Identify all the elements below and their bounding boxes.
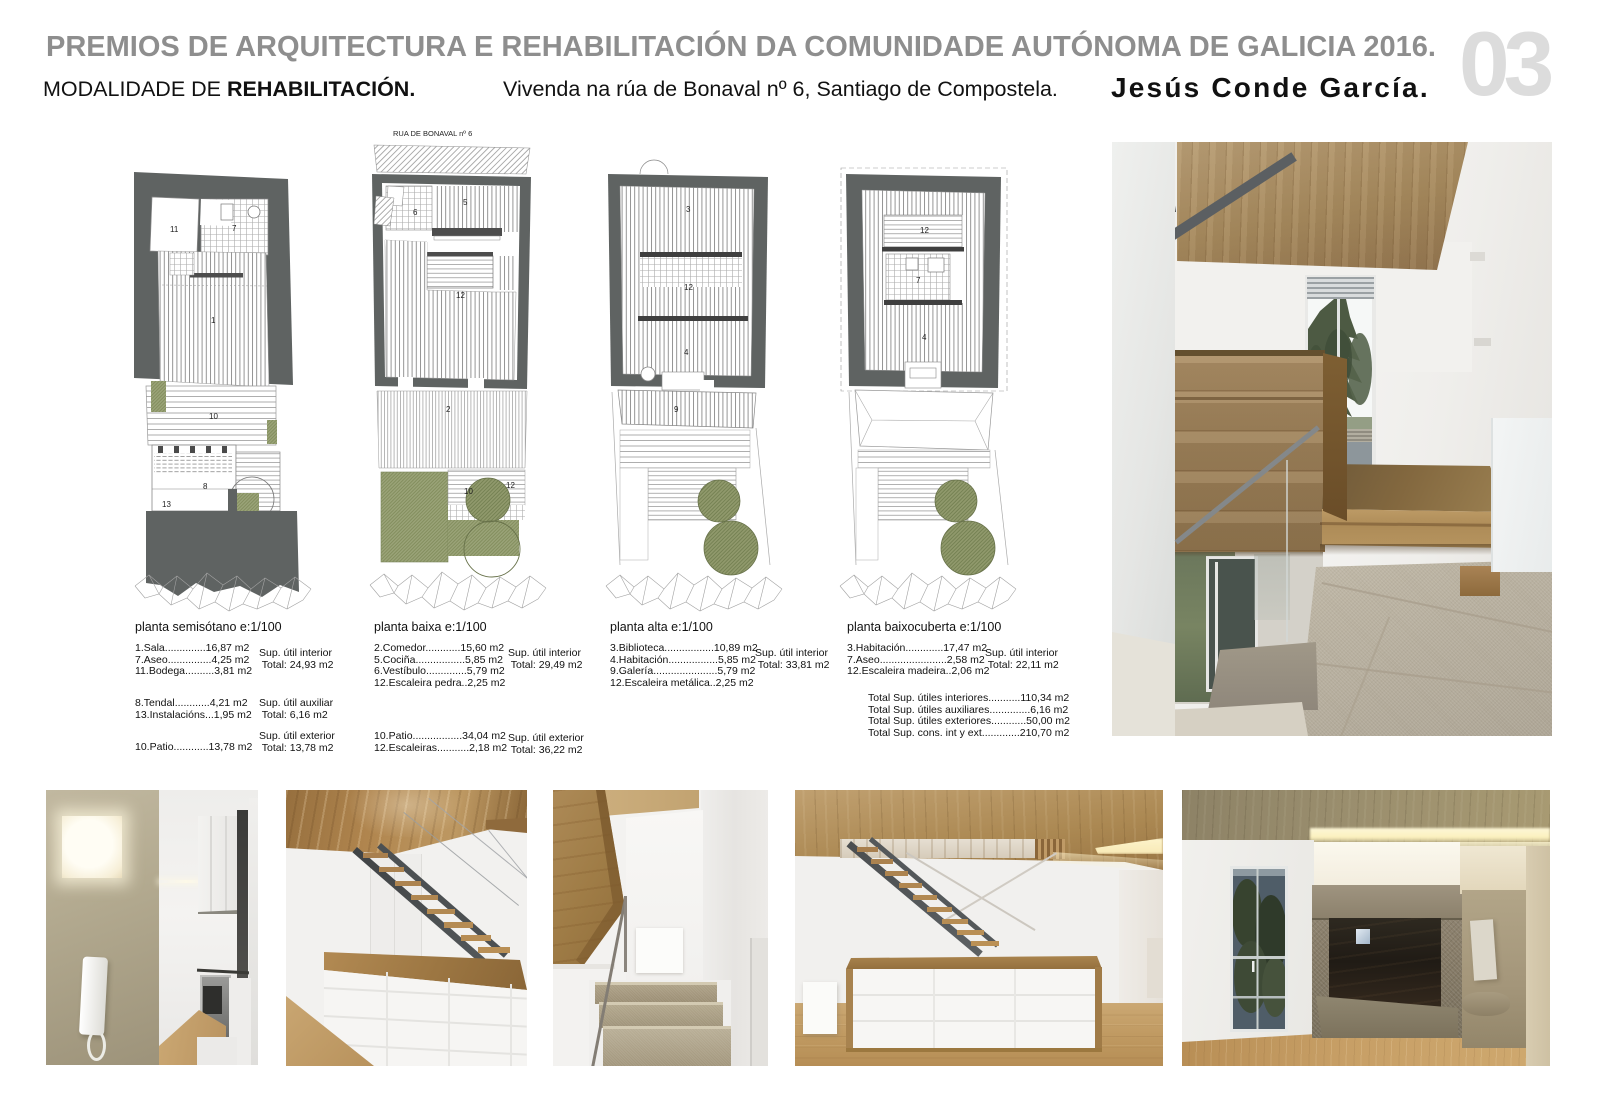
svg-text:12: 12	[456, 291, 465, 300]
svg-text:7: 7	[916, 276, 921, 285]
svg-text:12: 12	[506, 481, 515, 490]
svg-text:12: 12	[920, 226, 929, 235]
svg-text:RUA DE BONAVAL nº 6: RUA DE BONAVAL nº 6	[393, 129, 472, 138]
svg-text:9: 9	[674, 405, 679, 414]
svg-text:1: 1	[211, 316, 216, 325]
svg-text:13: 13	[162, 500, 171, 509]
svg-text:8: 8	[203, 482, 208, 491]
svg-text:3: 3	[686, 205, 691, 214]
svg-text:5: 5	[463, 198, 468, 207]
svg-text:7: 7	[232, 224, 237, 233]
svg-text:4: 4	[684, 348, 689, 357]
svg-text:12: 12	[684, 283, 693, 292]
svg-text:11: 11	[170, 225, 179, 234]
svg-text:10: 10	[464, 487, 473, 496]
svg-text:10: 10	[209, 412, 218, 421]
svg-text:2: 2	[446, 405, 451, 414]
svg-text:6: 6	[413, 208, 418, 217]
svg-text:4: 4	[922, 333, 927, 342]
